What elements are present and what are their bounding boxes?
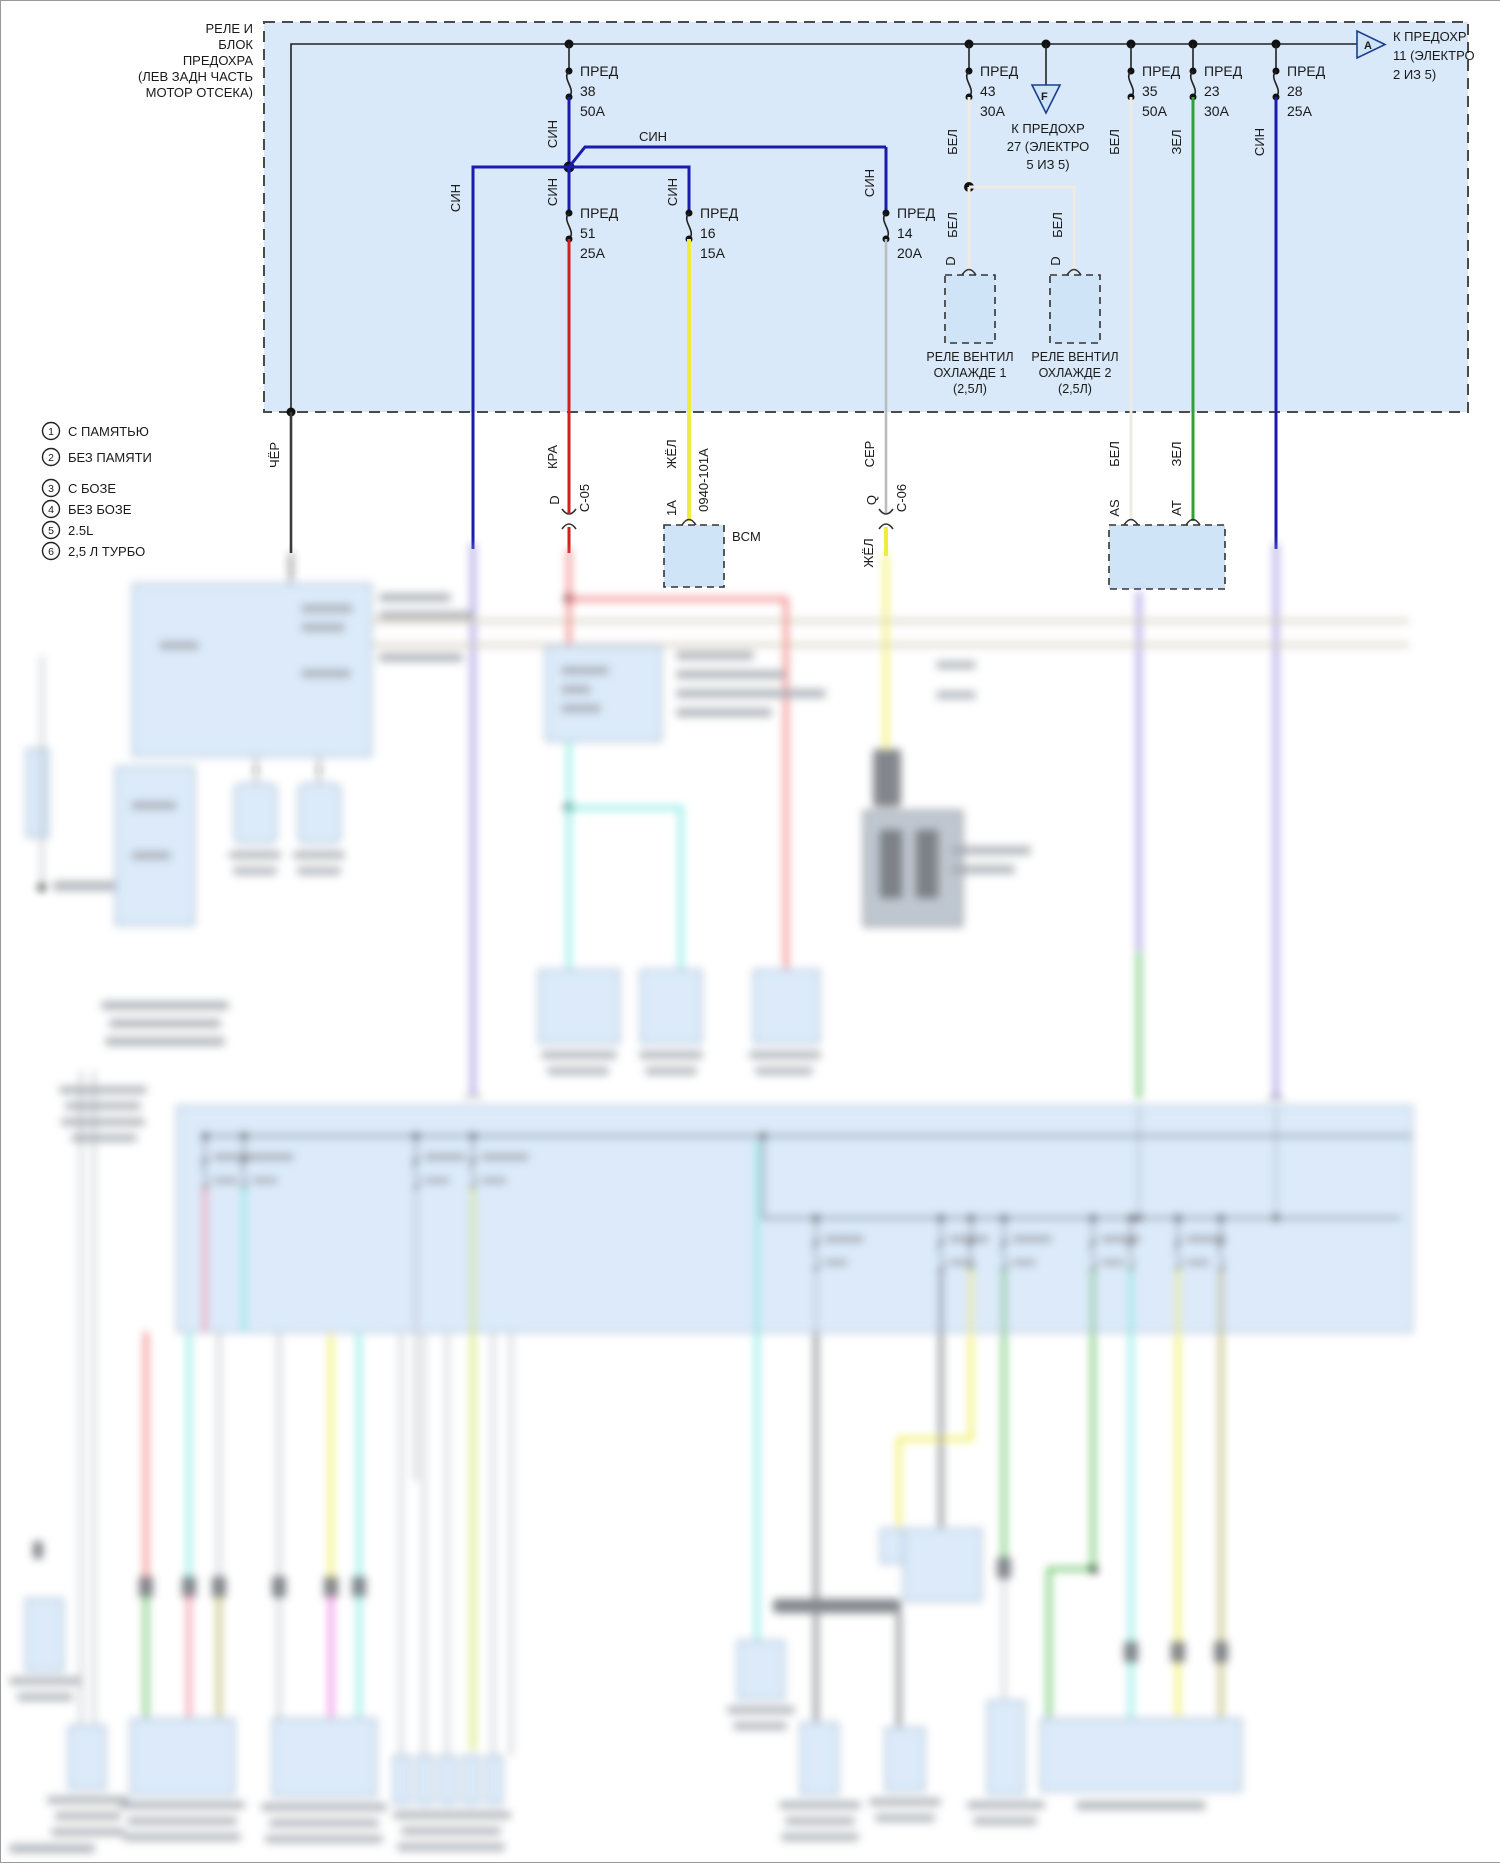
blurred-arc bbox=[466, 1094, 480, 1099]
wire-label-kra: КРА bbox=[545, 445, 560, 469]
fuse-block-label: РЕЛЕ И БЛОК ПРЕДОХРА (ЛЕВ ЗАДН ЧАСТЬ МОТ… bbox=[138, 21, 253, 100]
blurred-wire bbox=[569, 808, 681, 970]
wire-label-bel: БЕЛ bbox=[945, 212, 960, 238]
blurred-pin-box bbox=[463, 1756, 479, 1804]
wiring-diagram-canvas: РЕЛЕ И БЛОК ПРЕДОХРА (ЛЕВ ЗАДН ЧАСТЬ МОТ… bbox=[1, 1, 1500, 1862]
fuse-28-amp: 25A bbox=[1287, 103, 1313, 119]
fuse-14-num: 14 bbox=[897, 225, 913, 241]
connector-bcm-pin: 1A bbox=[664, 500, 679, 516]
wire-label-sin: СИН bbox=[862, 169, 877, 197]
blurred-pin-box bbox=[440, 1756, 456, 1804]
wire-label-sin: СИН bbox=[545, 120, 560, 148]
legend-num-1: 1 bbox=[48, 426, 54, 438]
relay2-caption-line: ОХЛАЖДЕ 2 bbox=[1039, 366, 1112, 380]
legend-label-2: БЕЗ ПАМЯТИ bbox=[68, 450, 152, 465]
blurred-connector-assembly bbox=[864, 811, 962, 926]
wire-label-sin: СИН bbox=[448, 184, 463, 212]
legend-label-1: С ПАМЯТЬЮ bbox=[68, 424, 149, 439]
ref-a-line: 11 (ЭЛЕКТРО bbox=[1393, 48, 1475, 63]
wire-label-zel: ЗЕЛ bbox=[1169, 129, 1184, 154]
fuse-38-label: ПРЕД bbox=[580, 63, 619, 79]
fuse-51-label: ПРЕД bbox=[580, 205, 619, 221]
blurred-component-box bbox=[539, 970, 619, 1043]
blurred-pin-box bbox=[417, 1756, 433, 1804]
fuse-14-label: ПРЕД bbox=[897, 205, 936, 221]
blurred-component-box bbox=[299, 784, 340, 843]
fuse-38-num: 38 bbox=[580, 83, 596, 99]
blurred-pin-box bbox=[394, 1756, 410, 1804]
connector-at-pin: AT bbox=[1169, 500, 1184, 516]
blurred-component-box bbox=[754, 970, 819, 1043]
legend-num-6: 6 bbox=[48, 546, 54, 558]
wire-label-zel: ЗЕЛ bbox=[1169, 441, 1184, 466]
ref-f-line: К ПРЕДОХР bbox=[1011, 121, 1085, 136]
blurred-component-box bbox=[26, 1599, 63, 1671]
fuse-28-label: ПРЕД bbox=[1287, 63, 1326, 79]
legend-num-4: 4 bbox=[48, 504, 54, 516]
connector-c05-pin: D bbox=[547, 495, 562, 504]
wire-label-zhel: ЖЁЛ bbox=[861, 538, 876, 567]
blurred-component-box bbox=[273, 1719, 376, 1796]
relay1-caption-line: ОХЛАЖДЕ 1 bbox=[934, 366, 1007, 380]
relay1-caption-line: РЕЛЕ ВЕНТИЛ bbox=[926, 350, 1013, 364]
fuse-28-num: 28 bbox=[1287, 83, 1303, 99]
wire-label-zhel: ЖЁЛ bbox=[664, 439, 679, 468]
legend-label-4: БЕЗ БОЗЕ bbox=[68, 502, 132, 517]
blurred-component-box bbox=[235, 784, 276, 843]
blurred-module-box bbox=[116, 767, 194, 925]
fuse-51-num: 51 bbox=[580, 225, 596, 241]
relay1-caption-line: (2,5Л) bbox=[953, 382, 987, 396]
legend-label-3: С БОЗЕ bbox=[68, 481, 116, 496]
fuse-14-amp: 20A bbox=[897, 245, 923, 261]
legend-num-5: 5 bbox=[48, 525, 54, 537]
wire-label-cher: ЧЁР bbox=[267, 442, 282, 468]
bcm-label: BCM bbox=[732, 529, 761, 544]
engine-module-box bbox=[1109, 525, 1225, 589]
relay2-box bbox=[1050, 275, 1100, 343]
wire-label-bel: БЕЛ bbox=[945, 129, 960, 155]
connector-as-pin: AS bbox=[1107, 499, 1122, 517]
connector-c05-id: C-05 bbox=[577, 484, 592, 512]
wire-label-sin: СИН bbox=[1252, 128, 1267, 156]
wire-label-bel: БЕЛ bbox=[1050, 212, 1065, 238]
wire-label-bel: БЕЛ bbox=[1107, 129, 1122, 155]
arrow-a-letter: А bbox=[1364, 40, 1372, 52]
blurred-lower-diagram bbox=[9, 543, 1412, 1853]
wire-label-sin: СИН bbox=[545, 178, 560, 206]
fuse-43-num: 43 bbox=[980, 83, 996, 99]
wiring-diagram-page: РЕЛЕ И БЛОК ПРЕДОХРА (ЛЕВ ЗАДН ЧАСТЬ МОТ… bbox=[0, 0, 1500, 1863]
wire-label-sin: СИН bbox=[639, 129, 667, 144]
ref-a-line: К ПРЕДОХР bbox=[1393, 29, 1467, 44]
legend: 1 С ПАМЯТЬЮ 2 БЕЗ ПАМЯТИ 3 С БОЗЕ 4 БЕЗ … bbox=[43, 423, 152, 560]
blurred-component-box bbox=[131, 1719, 234, 1794]
relay2-caption-line: РЕЛЕ ВЕНТИЛ bbox=[1031, 350, 1118, 364]
ref-f-line: 5 ИЗ 5) bbox=[1026, 157, 1069, 172]
wire-label-sin: СИН bbox=[665, 178, 680, 206]
fuse-block-label-line: (ЛЕВ ЗАДН ЧАСТЬ bbox=[138, 69, 253, 84]
fuse-23-num: 23 bbox=[1204, 83, 1220, 99]
fuse-35-num: 35 bbox=[1142, 83, 1158, 99]
fuse-16-label: ПРЕД bbox=[700, 205, 739, 221]
legend-num-3: 3 bbox=[48, 483, 54, 495]
blurred-component-box bbox=[988, 1701, 1024, 1794]
fuse-43-label: ПРЕД bbox=[980, 63, 1019, 79]
relay1-pin: D bbox=[943, 256, 958, 265]
fuse-block-label-line: ПРЕДОХРА bbox=[183, 53, 253, 68]
legend-label-5: 2.5L bbox=[68, 523, 93, 538]
relay1-box bbox=[945, 275, 995, 343]
fuse-51-amp: 25A bbox=[580, 245, 606, 261]
fuse-38-amp: 50A bbox=[580, 103, 606, 119]
bcm-box bbox=[664, 525, 724, 587]
relay2-pin: D bbox=[1048, 256, 1063, 265]
fuse-block-label-line: БЛОК bbox=[218, 37, 253, 52]
wire-label-ser: СЕР bbox=[862, 441, 877, 468]
connector-c06-id: C-06 bbox=[894, 484, 909, 512]
fuse-block-box bbox=[264, 22, 1468, 412]
arrow-f-letter: F bbox=[1041, 91, 1048, 103]
fuse-16-amp: 15A bbox=[700, 245, 726, 261]
relay2-caption-line: (2,5Л) bbox=[1058, 382, 1092, 396]
blurred-pin-box bbox=[486, 1756, 502, 1804]
wire-label-bel: БЕЛ bbox=[1107, 441, 1122, 467]
blurred-component-box bbox=[801, 1723, 838, 1794]
wire-label-circuit: 0940-101A bbox=[696, 448, 711, 512]
blurred-component-box bbox=[886, 1728, 924, 1791]
blurred-component-box bbox=[69, 1726, 105, 1789]
blurred-component-box bbox=[904, 1529, 981, 1601]
fuse-43-amp: 30A bbox=[980, 103, 1006, 119]
blurred-component-box bbox=[738, 1641, 784, 1699]
fuse-35-amp: 50A bbox=[1142, 103, 1168, 119]
fuse-23-label: ПРЕД bbox=[1204, 63, 1243, 79]
connector-c06-pin: Q bbox=[864, 495, 879, 505]
ref-f-line: 27 (ЭЛЕКТРО bbox=[1007, 139, 1090, 154]
blurred-component-box bbox=[641, 970, 701, 1043]
fuse-16-num: 16 bbox=[700, 225, 716, 241]
fuse-block-label-line: МОТОР ОТСЕКА) bbox=[146, 85, 253, 100]
blurred-component-box bbox=[1041, 1719, 1241, 1791]
fuse-block-label-line: РЕЛЕ И bbox=[206, 21, 254, 36]
fuse-35-label: ПРЕД bbox=[1142, 63, 1181, 79]
legend-label-6: 2,5 Л ТУРБО bbox=[68, 544, 145, 559]
ref-a-line: 2 ИЗ 5) bbox=[1393, 67, 1436, 82]
fuse-23-amp: 30A bbox=[1204, 103, 1230, 119]
blurred-connector-strip bbox=[27, 749, 48, 837]
legend-num-2: 2 bbox=[48, 452, 54, 464]
